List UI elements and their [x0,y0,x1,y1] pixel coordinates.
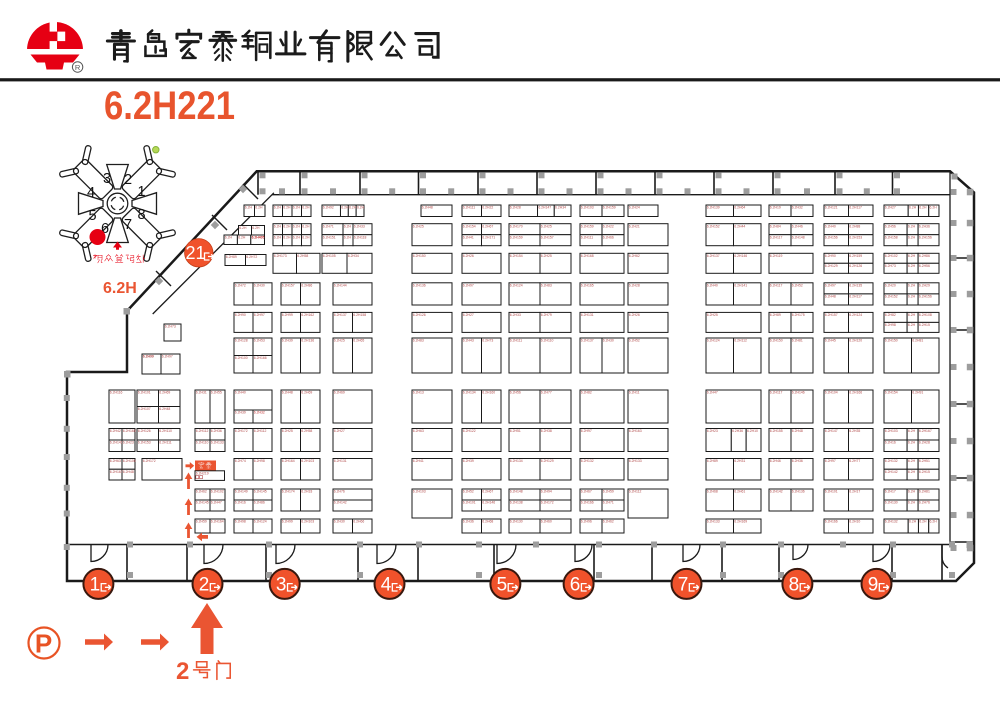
svg-text:6.2H159: 6.2H159 [849,254,862,258]
svg-text:6.2H97: 6.2H97 [254,313,265,317]
svg-text:6.2H28: 6.2H28 [629,283,640,287]
svg-text:6.2H141: 6.2H141 [734,283,747,287]
svg-text:6.2H149: 6.2H149 [235,490,248,494]
svg-text:6.2H139: 6.2H139 [707,206,720,210]
svg-text:6.2H: 6.2H [344,235,352,239]
svg-text:6.2H142: 6.2H142 [770,490,783,494]
svg-text:6.2H92: 6.2H92 [323,206,334,210]
svg-text:6.2H166: 6.2H166 [849,391,862,395]
svg-text:6.2H175: 6.2H175 [792,313,805,317]
svg-text:6.2H: 6.2H [225,236,233,240]
svg-text:6.2H159: 6.2H159 [510,235,523,239]
svg-text:6.2H35: 6.2H35 [849,429,860,433]
svg-text:6.2H111: 6.2H111 [510,339,522,343]
svg-text:6.2H27: 6.2H27 [334,429,345,433]
svg-text:6.2H81: 6.2H81 [912,339,923,343]
svg-text:6.2H: 6.2H [908,224,916,228]
svg-text:6.2H107: 6.2H107 [138,407,151,411]
svg-text:6.2H147: 6.2H147 [825,429,838,433]
svg-text:6.2H165: 6.2H165 [581,283,594,287]
svg-text:6.2H: 6.2H [908,501,916,505]
svg-text:6.2H148: 6.2H148 [510,490,523,494]
svg-text:6.2H126: 6.2H126 [138,429,151,433]
svg-text:6.2H126: 6.2H126 [849,264,862,268]
svg-text:6.2H: 6.2H [283,224,291,228]
svg-text:6.2H69: 6.2H69 [334,391,345,395]
svg-text:6.2H: 6.2H [908,283,916,287]
svg-text:6.2H52: 6.2H52 [463,490,474,494]
svg-text:6.2H30: 6.2H30 [603,339,614,343]
svg-text:6.2H117: 6.2H117 [770,283,783,287]
svg-text:6.2H101: 6.2H101 [138,391,151,395]
svg-text:6.2H36: 6.2H36 [792,459,803,463]
svg-text:6: 6 [570,575,581,596]
svg-text:6.2H22: 6.2H22 [603,224,614,228]
svg-text:6.2H: 6.2H [909,520,917,524]
svg-text:6.2H124: 6.2H124 [707,339,720,343]
svg-text:6.2H156: 6.2H156 [919,295,932,299]
svg-text:6.2H: 6.2H [908,441,916,445]
svg-text:6.2H146: 6.2H146 [482,501,495,505]
svg-text:6.2H158: 6.2H158 [885,235,898,239]
svg-text:6.2H25: 6.2H25 [707,313,718,317]
svg-text:6.2H30: 6.2H30 [334,520,345,524]
svg-text:6.2H148: 6.2H148 [792,235,805,239]
svg-text:6.2H: 6.2H [908,429,916,433]
svg-text:6.2H38: 6.2H38 [541,429,552,433]
svg-text:6.2H25: 6.2H25 [413,224,424,228]
svg-text:6.2H100: 6.2H100 [235,356,248,360]
svg-text:6.2H146: 6.2H146 [734,254,747,258]
svg-text:6.2H159: 6.2H159 [581,224,594,228]
svg-text:6.2H: 6.2H [908,323,916,327]
svg-text:6.2H: 6.2H [238,236,246,240]
svg-text:6.2H32: 6.2H32 [792,206,803,210]
svg-text:6.2H33: 6.2H33 [301,490,312,494]
svg-text:6.2H112: 6.2H112 [196,429,209,433]
svg-text:6.2H153: 6.2H153 [138,441,151,445]
svg-text:6.2H145: 6.2H145 [254,490,267,494]
svg-text:6.2H405: 6.2H405 [252,236,265,240]
svg-text:6.2H36: 6.2H36 [211,429,222,433]
svg-text:6.2H84: 6.2H84 [770,224,781,228]
svg-text:6.2H39: 6.2H39 [463,459,474,463]
svg-text:6.2H162: 6.2H162 [301,313,314,317]
svg-text:6.2H135: 6.2H135 [849,283,862,287]
svg-text:6.2H156: 6.2H156 [919,235,932,239]
svg-text:6.2H146: 6.2H146 [792,391,805,395]
svg-text:6.2H55: 6.2H55 [211,391,222,395]
svg-text:6.2H34: 6.2H34 [555,206,566,210]
svg-text:6.2H97: 6.2H97 [581,429,592,433]
svg-text:6.2H: 6.2H [349,206,357,210]
svg-text:6.2H: 6.2H [293,206,301,210]
svg-text:6.2H79: 6.2H79 [541,313,552,317]
svg-text:6.2H56: 6.2H56 [919,264,930,268]
svg-text:6.2H32: 6.2H32 [254,411,265,415]
svg-text:6.2H117: 6.2H117 [849,206,862,210]
svg-text:6.2H66: 6.2H66 [603,235,614,239]
svg-text:6.2H41: 6.2H41 [413,459,424,463]
svg-text:6.2H56: 6.2H56 [510,391,521,395]
svg-text:6.2H: 6.2H [357,206,365,210]
svg-text:6.2H171: 6.2H171 [482,235,495,239]
svg-text:6.2H48: 6.2H48 [422,206,433,210]
svg-text:4: 4 [381,575,392,596]
svg-text:6.2H164: 6.2H164 [211,520,224,524]
svg-text:6.2H170: 6.2H170 [510,224,523,228]
svg-text:R: R [75,63,81,72]
svg-text:6.2H102: 6.2H102 [885,254,898,258]
svg-text:2: 2 [199,575,210,596]
svg-text:6.2H94: 6.2H94 [541,490,552,494]
svg-text:6.2H124: 6.2H124 [510,283,523,287]
svg-text:6.2H64: 6.2H64 [734,206,745,210]
svg-text:6.2H36: 6.2H36 [463,520,474,524]
svg-text:6.2H77: 6.2H77 [541,391,552,395]
svg-text:6.2H142: 6.2H142 [334,501,347,505]
svg-text:6.2H13: 6.2H13 [413,391,424,395]
svg-text:6.2H81: 6.2H81 [792,339,803,343]
svg-text:6.2H116: 6.2H116 [110,391,123,395]
svg-text:6.2H46: 6.2H46 [792,224,803,228]
svg-text:6.2H25: 6.2H25 [541,254,552,258]
svg-text:6.2H99: 6.2H99 [143,355,154,359]
svg-text:6.2H172: 6.2H172 [143,459,156,463]
svg-text:6.2H72: 6.2H72 [235,283,246,287]
svg-text:6.2H: 6.2H [293,224,301,228]
svg-text:6.2H137: 6.2H137 [581,339,594,343]
svg-text:6.2H25: 6.2H25 [541,224,552,228]
svg-text:6.2H89: 6.2H89 [707,459,718,463]
svg-text:6.2H97: 6.2H97 [463,283,474,287]
svg-text:6.2H83: 6.2H83 [541,283,552,287]
svg-text:6.2H103: 6.2H103 [581,206,594,210]
svg-text:6.2H51: 6.2H51 [510,429,521,433]
svg-text:6.2H63: 6.2H63 [110,459,121,463]
svg-text:6.2H17: 6.2H17 [849,490,860,494]
svg-text:6.2H: 6.2H [252,226,260,230]
svg-text:6.2H71: 6.2H71 [603,501,614,505]
svg-text:6.2H129: 6.2H129 [541,459,554,463]
svg-text:6.2H: 6.2H [908,235,916,239]
svg-text:6.2H: 6.2H [341,206,349,210]
svg-text:6.2H163: 6.2H163 [629,429,642,433]
svg-text:6.2H97: 6.2H97 [825,283,836,287]
svg-text:6.2H: 6.2H [274,206,282,210]
svg-text:6.2H97: 6.2H97 [162,355,173,359]
svg-text:6.2H110: 6.2H110 [541,339,554,343]
svg-text:6.2H112: 6.2H112 [254,429,267,433]
svg-text:6.2H40: 6.2H40 [825,224,836,228]
svg-text:6.2H150: 6.2H150 [413,254,426,258]
svg-text:1: 1 [90,575,101,596]
svg-text:21: 21 [185,243,205,263]
svg-text:6.2H106: 6.2H106 [123,459,136,463]
svg-text:6.2H142: 6.2H142 [885,470,898,474]
svg-text:6.2H155: 6.2H155 [770,429,783,433]
svg-text:6.2H166: 6.2H166 [825,520,838,524]
svg-text:4: 4 [87,185,95,201]
svg-text:6.2H130: 6.2H130 [885,501,898,505]
svg-text:6.2H: 6.2H [908,295,916,299]
svg-text:6.2H98: 6.2H98 [254,459,265,463]
svg-text:6.2H: 6.2H [239,226,247,230]
svg-text:6.2H71: 6.2H71 [323,224,334,228]
svg-text:6.2H111: 6.2H111 [581,235,593,239]
svg-text:6.2H157: 6.2H157 [541,235,554,239]
svg-text:6.2H: 6.2H [245,206,253,210]
svg-text:6.2H62: 6.2H62 [603,520,614,524]
svg-text:6.2H89: 6.2H89 [226,255,237,259]
svg-text:6.2H90: 6.2H90 [825,254,836,258]
svg-text:6.2H128: 6.2H128 [235,339,248,343]
svg-text:3: 3 [103,171,111,187]
svg-text:6.2H19: 6.2H19 [770,206,781,210]
svg-text:6.2H166: 6.2H166 [581,501,594,505]
svg-text:6.2H141: 6.2H141 [110,441,123,445]
svg-text:6.2H73: 6.2H73 [482,339,493,343]
svg-text:6.2H112: 6.2H112 [629,490,642,494]
svg-text:6.2H102: 6.2H102 [211,490,224,494]
svg-text:6.2H157: 6.2H157 [282,283,295,287]
svg-text:6.2H136: 6.2H136 [792,490,805,494]
svg-text:6.2H150: 6.2H150 [885,339,898,343]
svg-text:6.2H103: 6.2H103 [301,520,314,524]
svg-text:6.2H73: 6.2H73 [165,325,176,329]
svg-text:6.2H10: 6.2H10 [849,520,860,524]
svg-text:6.2H124: 6.2H124 [849,313,862,317]
svg-text:6.2H168: 6.2H168 [581,254,594,258]
svg-text:6.2H88: 6.2H88 [849,224,860,228]
svg-text:6.2H133: 6.2H133 [629,459,642,463]
svg-text:6.2H76: 6.2H76 [919,501,930,505]
svg-text:6.2H86: 6.2H86 [301,283,312,287]
svg-text:6.2H167: 6.2H167 [919,429,932,433]
svg-text:6.2H: 6.2H [302,206,310,210]
svg-text:6.2H132: 6.2H132 [581,459,594,463]
svg-text:6.2H46: 6.2H46 [770,459,781,463]
svg-text:6.2H21: 6.2H21 [629,224,640,228]
svg-text:6.2H56: 6.2H56 [885,224,896,228]
svg-text:6.2H153: 6.2H153 [849,235,862,239]
svg-text:6.2H47: 6.2H47 [211,501,222,505]
svg-text:6.2H26: 6.2H26 [629,313,640,317]
svg-text:6.2H: 6.2H [919,206,927,210]
svg-text:6.2H99: 6.2H99 [282,520,293,524]
svg-text:6.2H72: 6.2H72 [246,255,257,259]
svg-text:6.2H154: 6.2H154 [463,224,476,228]
svg-text:6.2H90: 6.2H90 [235,313,246,317]
svg-text:6.2H16: 6.2H16 [235,501,246,505]
svg-text:6.2H29: 6.2H29 [919,283,930,287]
svg-text:6.2H61: 6.2H61 [734,490,745,494]
svg-text:6.2H48: 6.2H48 [282,391,293,395]
svg-text:6.2H: 6.2H [293,235,301,239]
svg-text:6.2H41: 6.2H41 [463,235,474,239]
svg-text:6.2H134: 6.2H134 [463,391,476,395]
svg-text:6.2H31: 6.2H31 [734,459,745,463]
svg-text:6.2H65: 6.2H65 [353,339,364,343]
svg-text:6.2H58: 6.2H58 [301,429,312,433]
svg-text:6.2H67: 6.2H67 [482,224,493,228]
svg-text:6.2H62: 6.2H62 [196,490,207,494]
svg-text:6.2H131: 6.2H131 [334,459,347,463]
svg-text:6.2H159: 6.2H159 [603,206,616,210]
svg-text:6.2H129: 6.2H129 [825,264,838,268]
svg-text:6.2H: 6.2H [908,254,916,258]
svg-text:6.2H62: 6.2H62 [629,254,640,258]
svg-text:6.2H: 6.2H [274,224,282,228]
svg-text:6.2H11: 6.2H11 [629,391,640,395]
svg-text:P: P [35,629,52,659]
svg-text:6.2H154: 6.2H154 [510,254,523,258]
svg-text:6.2H31: 6.2H31 [196,391,207,395]
svg-text:6.2H154: 6.2H154 [885,391,898,395]
svg-text:6.2H119: 6.2H119 [770,254,783,258]
svg-text:6.2H97: 6.2H97 [825,459,836,463]
svg-text:6.2H25: 6.2H25 [282,429,293,433]
svg-text:6.2H28: 6.2H28 [510,206,521,210]
svg-text:6.2H138: 6.2H138 [510,501,523,505]
svg-text:6.2H30: 6.2H30 [254,283,265,287]
svg-text:6.2H152: 6.2H152 [885,295,898,299]
svg-text:6.2H219: 6.2H219 [196,472,209,476]
svg-text:6.2H136: 6.2H136 [301,339,314,343]
svg-text:6.2H110: 6.2H110 [196,441,209,445]
svg-text:6.2H: 6.2H [302,224,310,228]
svg-text:6.2H126: 6.2H126 [413,313,426,317]
svg-text:6.2H67: 6.2H67 [482,490,493,494]
svg-text:6.2H24: 6.2H24 [629,206,640,210]
svg-text:6.2H157: 6.2H157 [825,313,838,317]
svg-text:6.2H59: 6.2H59 [196,520,207,524]
svg-text:6.2H156: 6.2H156 [825,235,838,239]
svg-text:6.2H28: 6.2H28 [919,441,930,445]
svg-text:6.2H152: 6.2H152 [707,224,720,228]
svg-text:6.2H111: 6.2H111 [463,206,475,210]
svg-text:6.2H59: 6.2H59 [603,490,614,494]
svg-text:6.2H110: 6.2H110 [159,429,172,433]
svg-text:6.2H158: 6.2H158 [353,313,366,317]
svg-text:6.2H51: 6.2H51 [919,459,930,463]
svg-text:6.2H40: 6.2H40 [235,391,246,395]
svg-text:6.2H144: 6.2H144 [334,283,347,287]
svg-text:7: 7 [124,217,132,233]
svg-text:6.2H52: 6.2H52 [629,339,640,343]
svg-text:6.2H133: 6.2H133 [707,520,720,524]
svg-text:6.2H10: 6.2H10 [747,429,758,433]
svg-text:6.2H53: 6.2H53 [254,339,265,343]
svg-text:6.2H99: 6.2H99 [282,313,293,317]
svg-text:6.2H83: 6.2H83 [413,339,424,343]
svg-text:6.2H112: 6.2H112 [734,339,747,343]
svg-text:6.2H124: 6.2H124 [254,520,267,524]
svg-text:6.2H108: 6.2H108 [919,313,932,317]
svg-text:6.2H103: 6.2H103 [301,459,314,463]
svg-text:6.2H48: 6.2H48 [825,295,836,299]
svg-text:6.2H: 6.2H [274,235,282,239]
svg-text:6.2H133: 6.2H133 [211,441,224,445]
svg-text:6.2H: 6.2H [908,264,916,268]
svg-text:6.2H: 6.2H [919,520,927,524]
svg-text:6.2H58: 6.2H58 [297,254,308,258]
svg-text:6.2H33: 6.2H33 [354,224,365,228]
svg-text:6.2H130: 6.2H130 [510,520,523,524]
svg-text:6.2H121: 6.2H121 [825,206,838,210]
svg-text:6.2H120: 6.2H120 [849,339,862,343]
svg-text:2: 2 [124,172,132,188]
svg-text:6.2H: 6.2H [909,206,917,210]
svg-text:6.2H160: 6.2H160 [482,391,495,395]
svg-text:6.2H: 6.2H [930,520,938,524]
svg-text:6.2H42: 6.2H42 [110,429,121,433]
svg-text:6.2H68: 6.2H68 [482,520,493,524]
svg-text:6.2H164: 6.2H164 [282,459,295,463]
svg-text:6.2H25: 6.2H25 [334,339,345,343]
svg-text:6.2H: 6.2H [302,235,310,239]
svg-text:8: 8 [137,207,145,223]
svg-text:6.2H118: 6.2H118 [354,235,367,239]
svg-text:6.2H89: 6.2H89 [770,313,781,317]
svg-text:2: 2 [176,658,189,685]
svg-text:6.2H33: 6.2H33 [510,313,521,317]
svg-text:6.2H134: 6.2H134 [510,459,523,463]
svg-text:6.2H: 6.2H [908,470,916,474]
svg-text:6.2H69: 6.2H69 [301,391,312,395]
svg-text:6.2H67: 6.2H67 [581,490,592,494]
svg-text:6.2H: 6.2H [930,206,938,210]
svg-text:6.2H82: 6.2H82 [581,391,592,395]
svg-text:6.2H105: 6.2H105 [323,254,336,258]
svg-text:6.2H77: 6.2H77 [849,459,860,463]
svg-text:6.2H137: 6.2H137 [707,254,720,258]
svg-text:6.2H69: 6.2H69 [159,391,170,395]
svg-text:9: 9 [868,575,879,596]
svg-text:6.2H66: 6.2H66 [353,520,364,524]
svg-text:6.2H111: 6.2H111 [159,441,171,445]
svg-text:7: 7 [678,575,689,596]
svg-text:6.2H: 6.2H [908,313,916,317]
svg-text:6.2H: 6.2H [283,206,291,210]
svg-text:6.2H173: 6.2H173 [274,254,287,258]
svg-text:6.2H81: 6.2H81 [919,490,930,494]
svg-text:6.2H52: 6.2H52 [792,283,803,287]
svg-text:6.2H98: 6.2H98 [235,520,246,524]
svg-text:6.2H26: 6.2H26 [463,254,474,258]
svg-text:6.2H103: 6.2H103 [413,490,426,494]
svg-text:6.2H48: 6.2H48 [123,470,134,474]
svg-text:6.2H169: 6.2H169 [734,520,747,524]
svg-text:6.2H: 6.2H [344,224,352,228]
svg-text:6.2H16: 6.2H16 [885,441,896,445]
svg-text:6.2H36: 6.2H36 [732,429,743,433]
svg-text:6.2H47: 6.2H47 [707,391,718,395]
svg-text:6.2H: 6.2H [908,490,916,494]
svg-text:6.2H91: 6.2H91 [912,391,923,395]
svg-text:6.2H101: 6.2H101 [825,490,838,494]
svg-text:6.2H103: 6.2H103 [885,429,898,433]
svg-text:6.2H136: 6.2H136 [413,283,426,287]
svg-text:3: 3 [276,575,287,596]
svg-text:6.2H221: 6.2H221 [104,84,235,128]
svg-text:6.2H145: 6.2H145 [196,501,209,505]
svg-text:6.2H36: 6.2H36 [919,224,930,228]
svg-text:6.2H23: 6.2H23 [707,429,718,433]
svg-text:6.2H27: 6.2H27 [885,206,896,210]
svg-text:6.2H96: 6.2H96 [581,520,592,524]
svg-text:6.2H40: 6.2H40 [707,283,718,287]
